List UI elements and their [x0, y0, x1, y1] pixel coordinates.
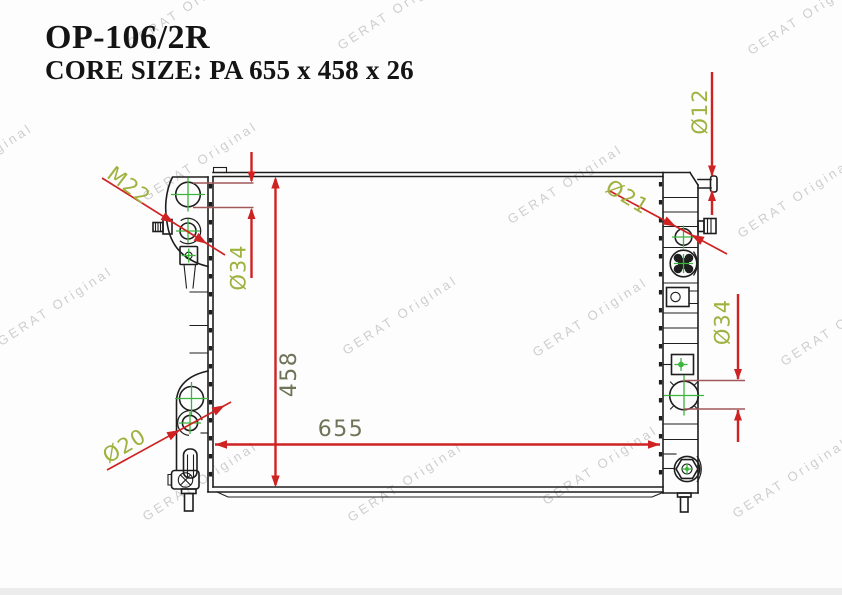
label-core-width: 655 [318, 417, 365, 442]
radiator-line-drawing: M22 Ø34 Ø20 Ø21 Ø12 Ø34 458 655 [0, 0, 842, 595]
radiator-technical-drawing: GERAT OriginalGERAT OriginalGERAT Origin… [0, 0, 842, 595]
upper-left-mount-bracket [153, 177, 208, 288]
label-dia34-right: Ø34 [711, 299, 735, 345]
bottom-bolt-fitting [168, 471, 199, 490]
hex-plug-fitting [670, 250, 697, 277]
dimension-arrows [161, 166, 742, 488]
scan-edge-strip [0, 588, 842, 595]
core-outline [208, 168, 690, 498]
label-core-height: 458 [277, 351, 302, 398]
drawing-header: OP-106/2R CORE SIZE: PA 655 x 458 x 26 [45, 20, 414, 85]
right-threaded-peg [698, 219, 716, 234]
mount-slot [184, 449, 198, 478]
top-overflow-pipe-stub [698, 176, 717, 192]
side-bracket-with-hole [667, 288, 699, 307]
part-number: OP-106/2R [45, 20, 414, 56]
core-size-label: CORE SIZE: PA 655 x 458 x 26 [45, 56, 414, 85]
label-dia34-left: Ø34 [227, 244, 251, 290]
label-m22-thread: M22 [103, 162, 156, 210]
inlet-port-21 [672, 226, 695, 249]
bottom-right-peg [678, 493, 692, 512]
bottom-left-peg [182, 489, 197, 511]
lower-left-mount-bracket [168, 371, 208, 511]
label-dia21-inlet: Ø21 [601, 175, 653, 219]
label-dia20-drain: Ø20 [98, 424, 150, 468]
label-dia12-pipe: Ø12 [688, 88, 712, 134]
sensor-boss-square [663, 355, 694, 375]
hex-bolt-fitting [663, 456, 701, 482]
